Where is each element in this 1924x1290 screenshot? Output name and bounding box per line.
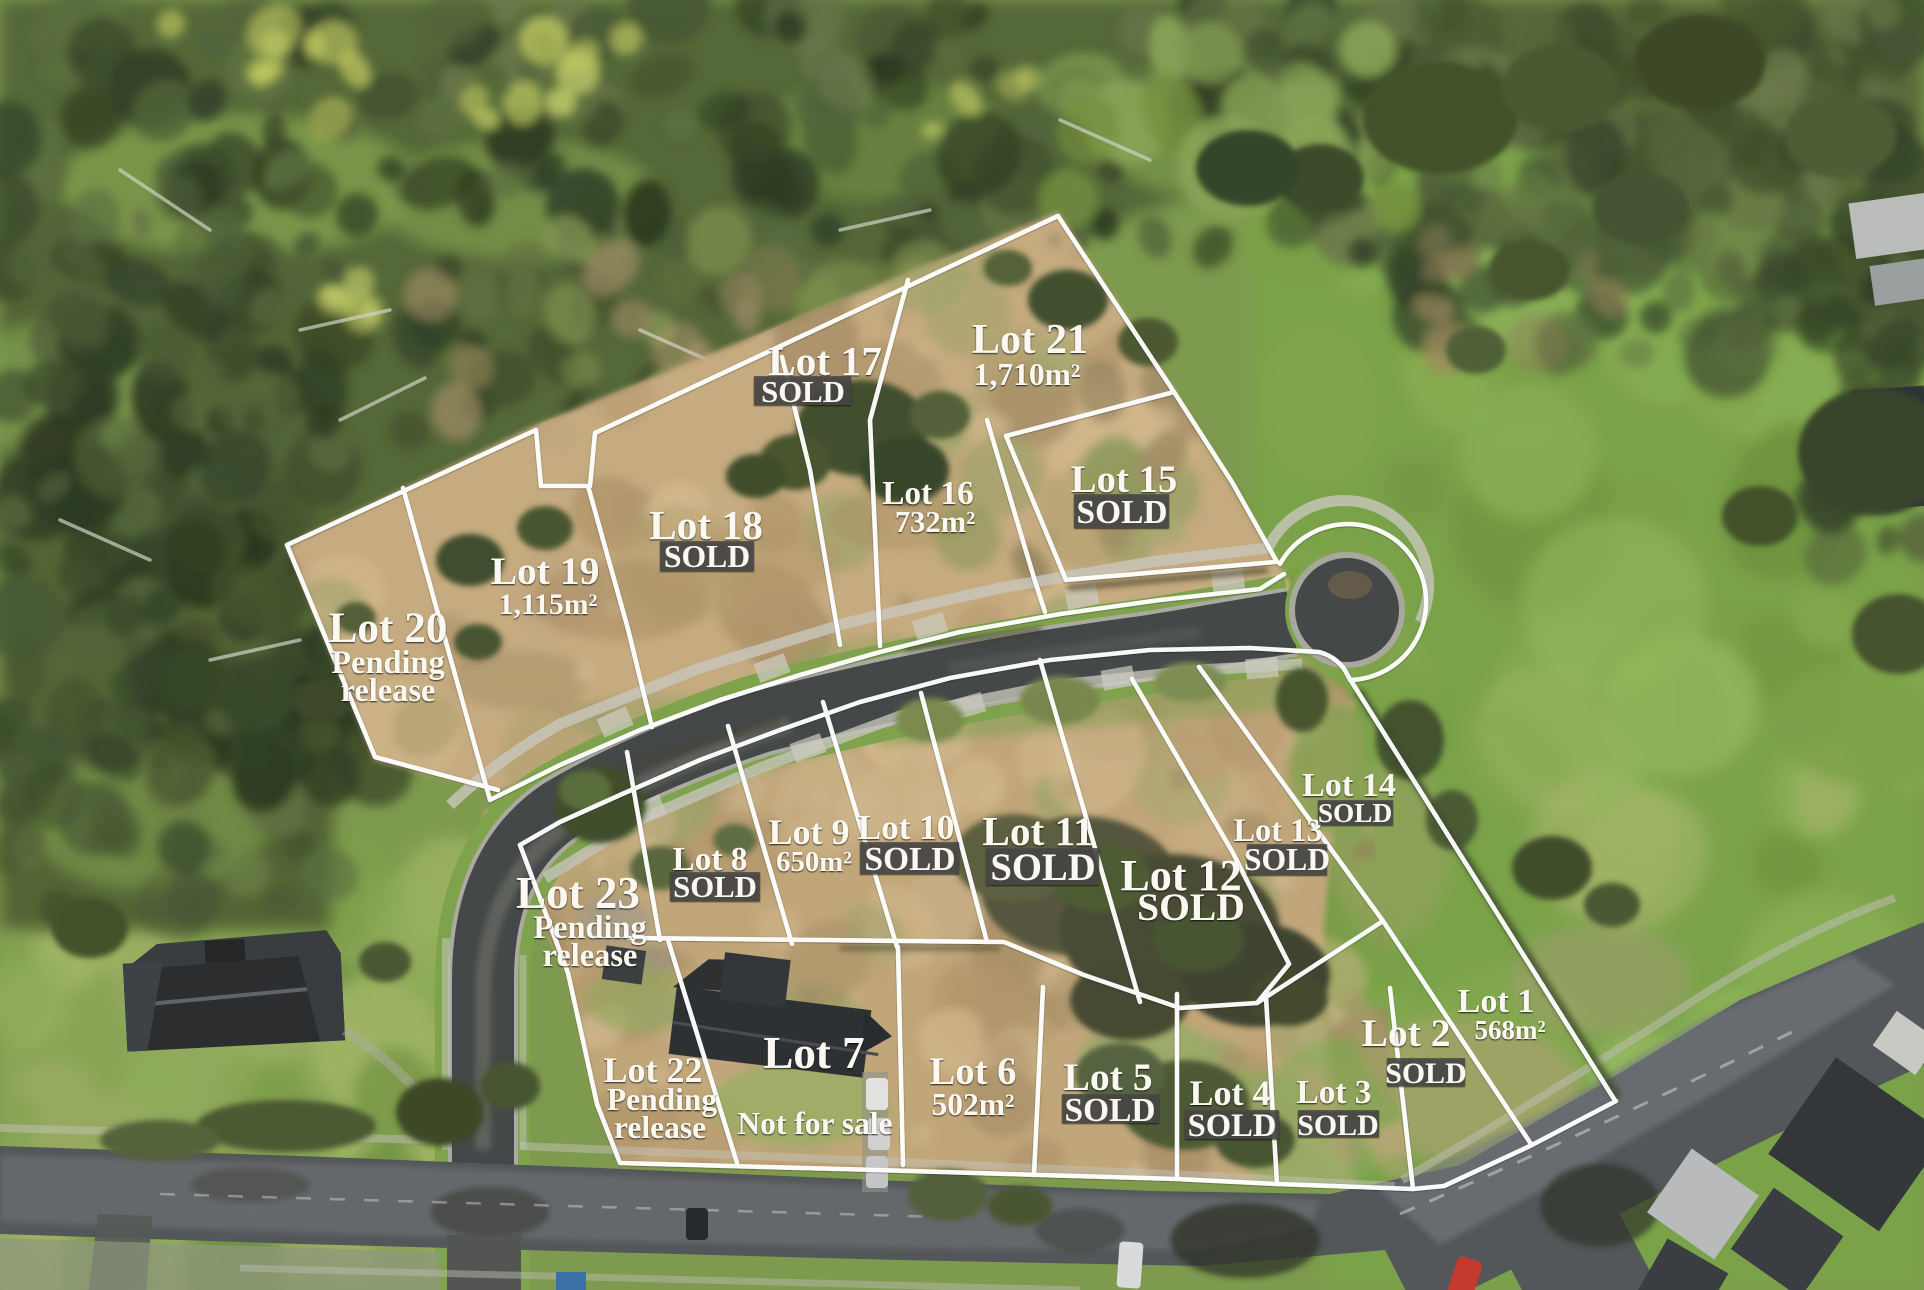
svg-text:SOLD: SOLD: [1137, 885, 1245, 929]
svg-text:Not for sale: Not for sale: [737, 1106, 892, 1141]
svg-text:732m²: 732m²: [895, 505, 976, 539]
svg-text:SOLD: SOLD: [1385, 1057, 1466, 1090]
svg-text:Lot 7: Lot 7: [763, 1028, 864, 1078]
svg-text:650m²: 650m²: [776, 846, 852, 878]
svg-text:Lot 3: Lot 3: [1297, 1074, 1372, 1111]
svg-text:1,115m²: 1,115m²: [499, 589, 598, 621]
svg-text:Lot 21: Lot 21: [972, 316, 1088, 363]
svg-text:SOLD: SOLD: [990, 847, 1095, 889]
svg-text:release: release: [614, 1110, 706, 1145]
svg-text:SOLD: SOLD: [761, 375, 845, 409]
svg-text:SOLD: SOLD: [1297, 1109, 1378, 1142]
svg-text:SOLD: SOLD: [1244, 842, 1330, 877]
svg-text:SOLD: SOLD: [664, 539, 750, 574]
svg-text:SOLD: SOLD: [1077, 494, 1168, 531]
svg-text:Lot 2: Lot 2: [1361, 1011, 1450, 1055]
svg-text:release: release: [543, 938, 638, 974]
svg-text:SOLD: SOLD: [1188, 1108, 1277, 1144]
svg-text:SOLD: SOLD: [673, 870, 757, 904]
svg-text:SOLD: SOLD: [865, 841, 956, 878]
svg-text:SOLD: SOLD: [1065, 1092, 1156, 1129]
svg-text:release: release: [341, 673, 436, 709]
svg-text:Lot 19: Lot 19: [491, 549, 600, 593]
svg-text:1,710m²: 1,710m²: [974, 357, 1081, 392]
svg-text:SOLD: SOLD: [1318, 798, 1392, 828]
svg-text:502m²: 502m²: [932, 1087, 1015, 1122]
svg-text:Lot 4: Lot 4: [1190, 1073, 1271, 1113]
svg-text:568m²: 568m²: [1474, 1015, 1545, 1045]
